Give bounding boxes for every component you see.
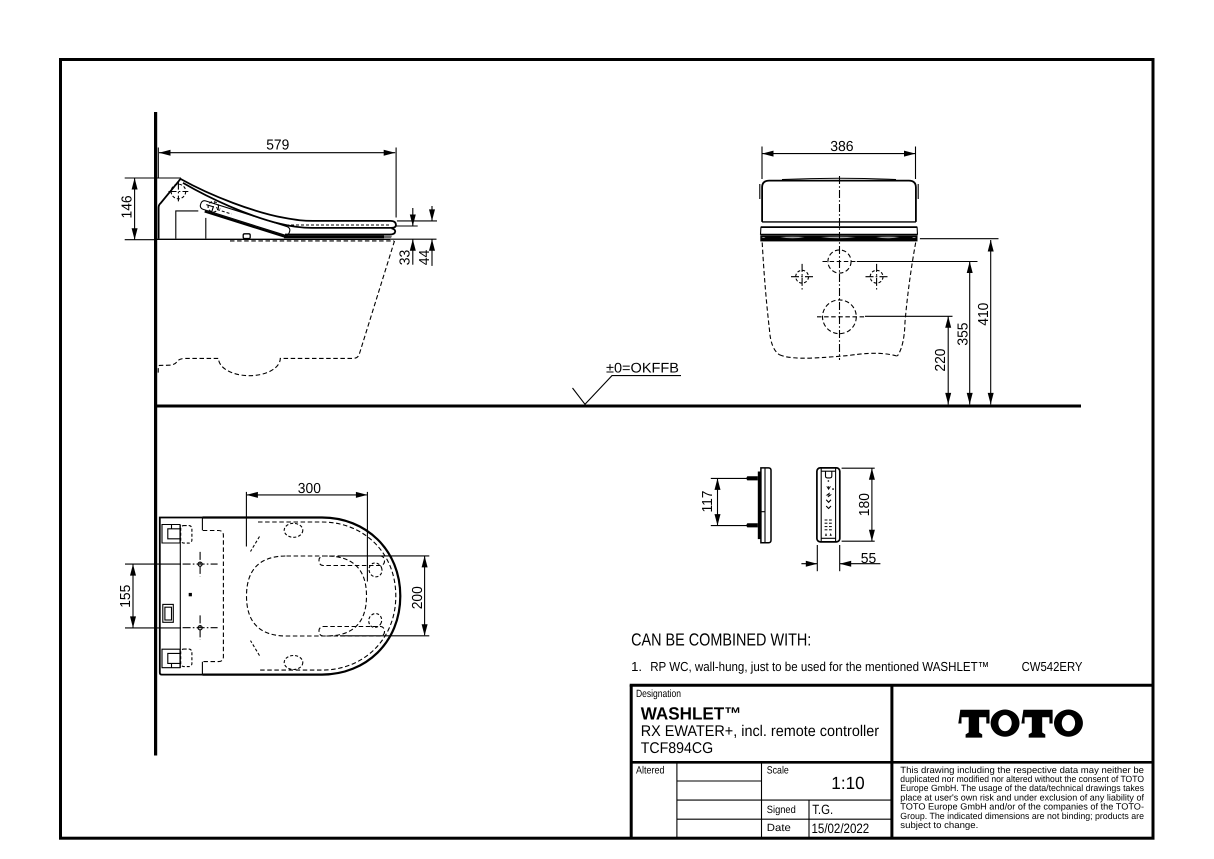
svg-text:1.: 1. <box>631 659 642 674</box>
svg-text:117: 117 <box>700 491 716 513</box>
svg-text:Designation: Designation <box>636 688 681 700</box>
svg-text:TCF894CG: TCF894CG <box>641 740 714 757</box>
svg-text:T.G.: T.G. <box>812 802 833 817</box>
svg-text:±0=OKFFB: ±0=OKFFB <box>606 360 679 376</box>
svg-text:355: 355 <box>955 323 971 346</box>
svg-text:180: 180 <box>857 493 873 516</box>
svg-text:386: 386 <box>830 139 853 155</box>
svg-text:200: 200 <box>410 586 426 609</box>
svg-text:300: 300 <box>298 481 321 497</box>
svg-text:subject to change.: subject to change. <box>900 820 978 830</box>
svg-text:44: 44 <box>417 250 433 266</box>
svg-text:220: 220 <box>933 349 949 372</box>
svg-text:CW542ERY: CW542ERY <box>1022 659 1083 674</box>
svg-text:RP WC, wall-hung, just to be u: RP WC, wall-hung, just to be used for th… <box>650 659 989 674</box>
svg-text:55: 55 <box>861 551 877 567</box>
svg-text:410: 410 <box>976 303 992 326</box>
svg-text:Scale: Scale <box>767 765 789 777</box>
svg-text:33: 33 <box>398 250 414 266</box>
svg-text:1:10: 1:10 <box>831 773 865 793</box>
svg-text:155: 155 <box>118 585 134 608</box>
svg-text:WASHLET™: WASHLET™ <box>641 704 742 724</box>
svg-text:Altered: Altered <box>636 765 665 777</box>
svg-text:15/02/2022: 15/02/2022 <box>812 821 870 836</box>
svg-text:Date: Date <box>767 822 791 834</box>
svg-text:Signed: Signed <box>767 804 796 816</box>
svg-text:146: 146 <box>120 195 136 218</box>
svg-text:579: 579 <box>266 138 289 154</box>
svg-text:RX EWATER+, incl. remote contr: RX EWATER+, incl. remote controller <box>641 723 879 740</box>
svg-text:CAN BE COMBINED WITH:: CAN BE COMBINED WITH: <box>631 629 811 649</box>
